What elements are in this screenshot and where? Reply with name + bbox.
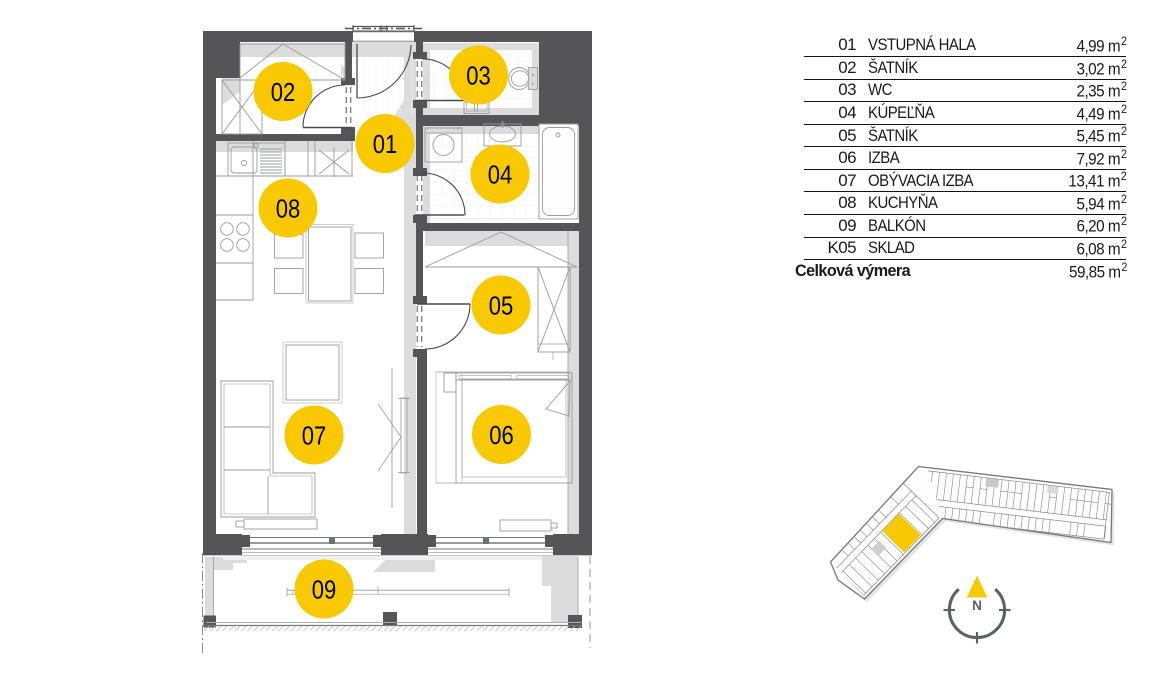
svg-text:08: 08 (276, 194, 301, 224)
svg-text:02: 02 (271, 77, 296, 107)
svg-text:01: 01 (373, 129, 398, 159)
svg-text:06: 06 (489, 420, 514, 450)
svg-text:03: 03 (466, 61, 491, 91)
svg-text:07: 07 (302, 421, 327, 451)
svg-text:N: N (972, 598, 982, 613)
svg-text:04: 04 (488, 160, 513, 190)
svg-text:05: 05 (489, 291, 514, 321)
svg-text:09: 09 (312, 575, 337, 605)
